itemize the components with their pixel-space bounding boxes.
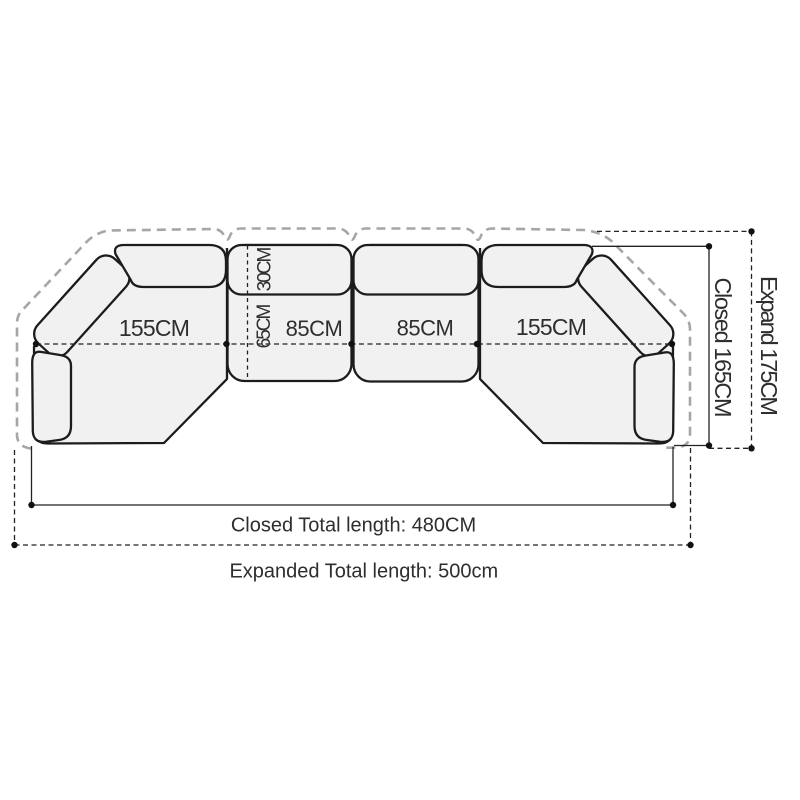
svg-text:65CM: 65CM bbox=[254, 304, 275, 348]
svg-text:Closed Total length: 480CM: Closed Total length: 480CM bbox=[231, 515, 476, 537]
svg-text:155CM: 155CM bbox=[516, 314, 586, 340]
svg-text:Expand 175CM: Expand 175CM bbox=[756, 276, 782, 414]
svg-text:85CM: 85CM bbox=[397, 316, 454, 341]
svg-text:Closed 165CM: Closed 165CM bbox=[710, 277, 736, 416]
svg-text:85CM: 85CM bbox=[286, 316, 343, 341]
svg-text:Expanded Total length: 500cm: Expanded Total length: 500cm bbox=[229, 561, 498, 583]
svg-text:30CM: 30CM bbox=[255, 247, 276, 291]
svg-text:155CM: 155CM bbox=[119, 315, 189, 341]
